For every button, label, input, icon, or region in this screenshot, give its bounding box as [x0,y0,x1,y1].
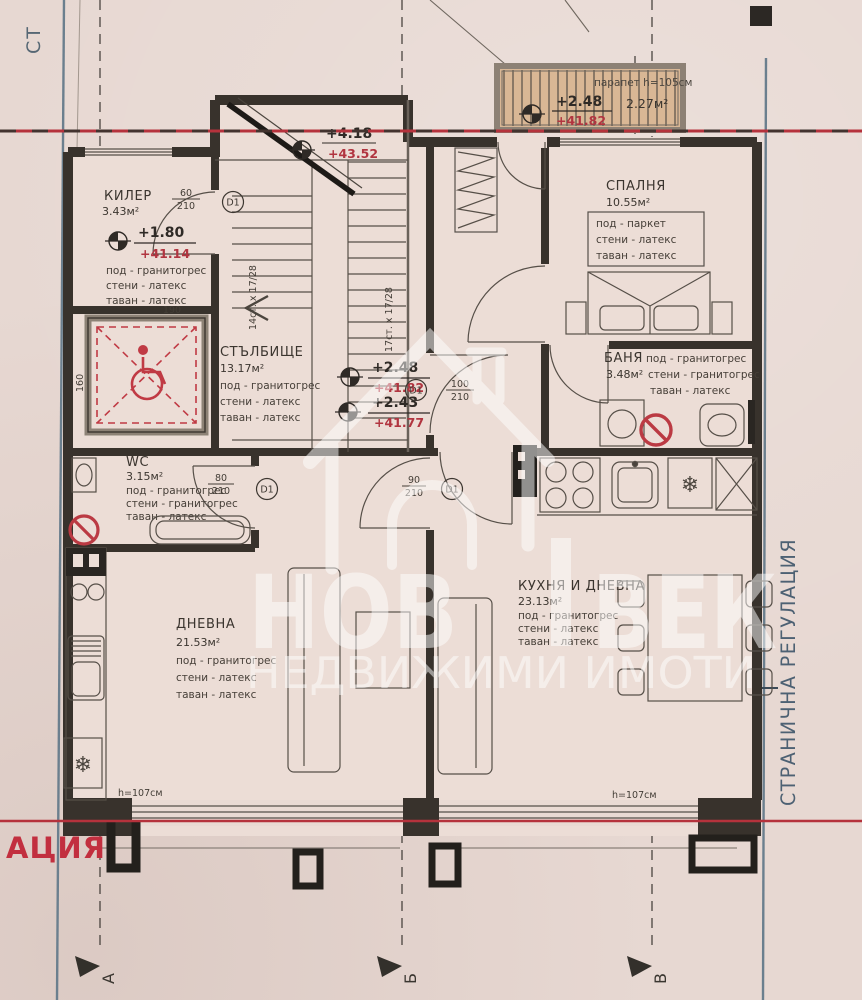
room-kiler-area: 3.43м² [102,205,139,218]
room-kiler-finish-ceiling: таван - латекс [106,295,187,307]
fridge-snowflake-icon: ❄ [74,753,92,778]
room-stalbishte-finish-walls: стени - латекс [220,396,301,408]
door-kiler-height: 210 [177,201,195,212]
scanned-floor-plan: { "site": { "label_top_left": "СТ", "lab… [0,0,862,1000]
axis-label-b: Б [401,973,420,984]
door-wc-width: 80 [215,473,227,484]
room-stalbishte-finish-floor: под - гранитогрес [220,380,321,392]
room-stalbishte-finish-ceiling: таван - латекс [220,412,301,424]
fridge-snowflake-icon: ❄ [681,473,699,498]
survey-mark [750,6,772,26]
room-spalnya-finish-ceiling: таван - латекс [596,250,677,262]
room-kiler-name: КИЛЕР [104,189,152,204]
stairs-flight-right-label: 17ст. х 17/28 [384,287,395,352]
terrace: парапет h=105см +2.48 +41.82 2.27м² [497,66,692,130]
room-spalnya-name: СПАЛНЯ [606,179,666,194]
room-wc-finish-walls: стени - гранитогрес [126,498,238,510]
stairs-top-elev-rel: +4.18 [326,126,372,142]
room-banya-area: 3.48м² [606,368,643,381]
terrace-area: 2.27м² [626,96,668,111]
terrace-parapet-note: парапет h=105см [594,77,692,89]
radiator [748,400,755,444]
axis-label-a: А [99,973,118,984]
window-sill-left: h=107см [118,788,163,799]
boundary-label-side-regulation: СТРАНИЧНА РЕГУЛАЦИЯ [777,538,800,806]
room-kiler-finish-walls: стени - латекс [106,280,187,292]
door-code: D1 [409,386,422,397]
door-wc-height: 210 [212,486,230,497]
room-stalbishte-area: 13.17м² [220,362,264,375]
door-kiler-width: 60 [180,188,192,199]
room-kiler-elev-rel: +1.80 [138,225,185,241]
room-dnevna-name: ДНЕВНА [176,617,235,632]
regulation-label: АЦИЯ [6,831,106,865]
terrace-elev-abs: +41.82 [556,113,606,128]
door-code: D1 [260,485,273,496]
platform-dim-left: 160 [75,374,86,392]
room-kiler-elev-abs: +41.14 [140,246,190,261]
window-sill-right: h=107см [612,790,657,801]
room-banya-finish-floor: под - гранитогрес [646,353,747,365]
axis-label-v: В [651,973,670,984]
room-wc-area: 3.15м² [126,470,163,483]
stairs-top-elev-abs: +43.52 [328,146,378,161]
floor-plan-drawing: СТ СТРАНИЧНА РЕГУЛАЦИЯ А Б В парапет h=1… [0,0,862,1000]
boundary-label-st: СТ [23,25,45,54]
room-dnevna-finish-walls: стени - латекс [176,672,257,684]
room-banya-finish-ceiling: таван - латекс [650,385,731,397]
stairs-flight-left-label: 14ст. х 17/28 [248,265,259,330]
room-dnevna-area: 21.53м² [176,636,220,649]
room-banya-name: БАНЯ [604,351,643,366]
room-spalnya-area: 10.55м² [606,196,650,209]
elev-low-abs: +41.77 [374,415,424,430]
door-code: D1 [226,198,239,209]
room-spalnya-finish-floor: под - паркет [596,218,666,230]
room-stalbishte-name: СТЪЛБИЩЕ [220,345,304,360]
door-entry-height: 210 [451,392,469,403]
room-wc-name: WC [126,455,149,470]
terrace-elev-rel: +2.48 [556,94,602,110]
room-banya-finish-walls: стени - гранитогрес [648,369,760,381]
room-spalnya-finish-walls: стени - латекс [596,234,677,246]
room-kiler-finish-floor: под - гранитогрес [106,265,207,277]
watermark-subtitle: НЕДВИЖИМИ ИМОТИ [246,648,756,699]
room-dnevna-finish-ceiling: таван - латекс [176,689,257,701]
